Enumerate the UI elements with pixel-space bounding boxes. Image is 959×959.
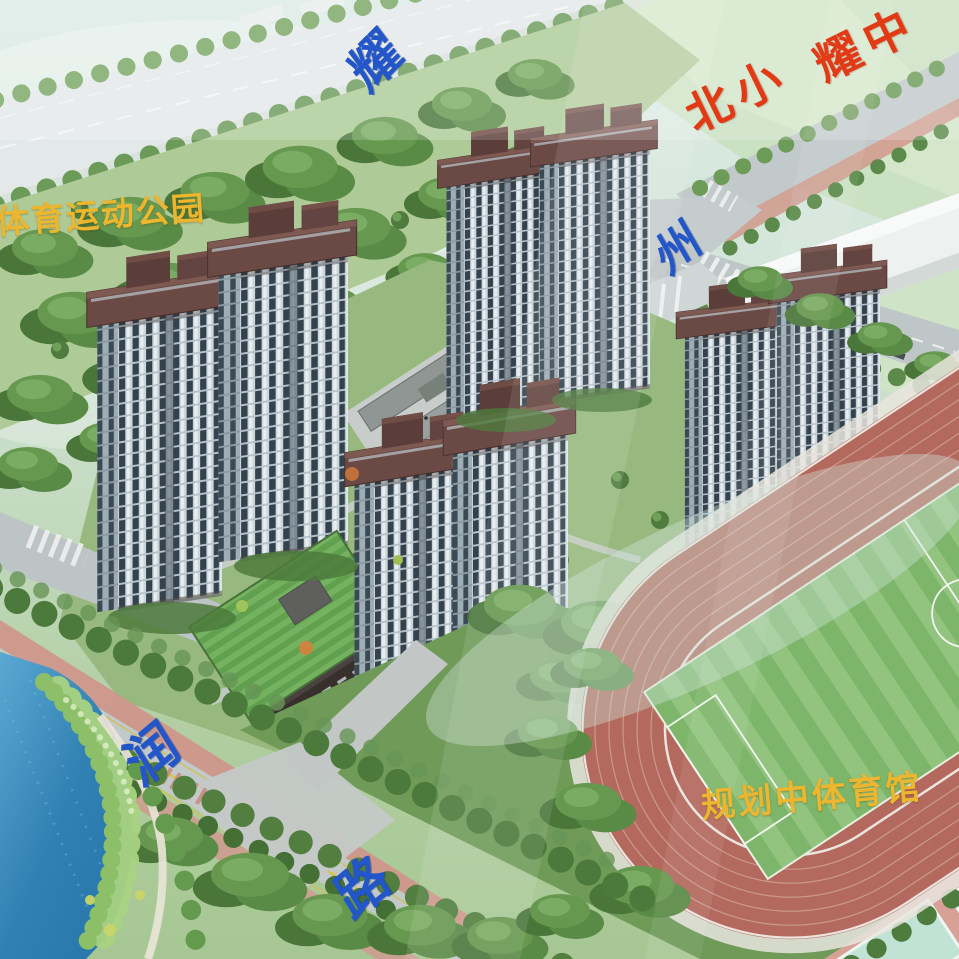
tower-west-2 [208,191,357,567]
tower-west-1 [87,241,231,617]
rendering-canvas [0,0,959,959]
aerial-masterplan-rendering: 耀 耀中 北小 体育运动公园 州 润 路 规划中体育馆 [0,0,959,959]
